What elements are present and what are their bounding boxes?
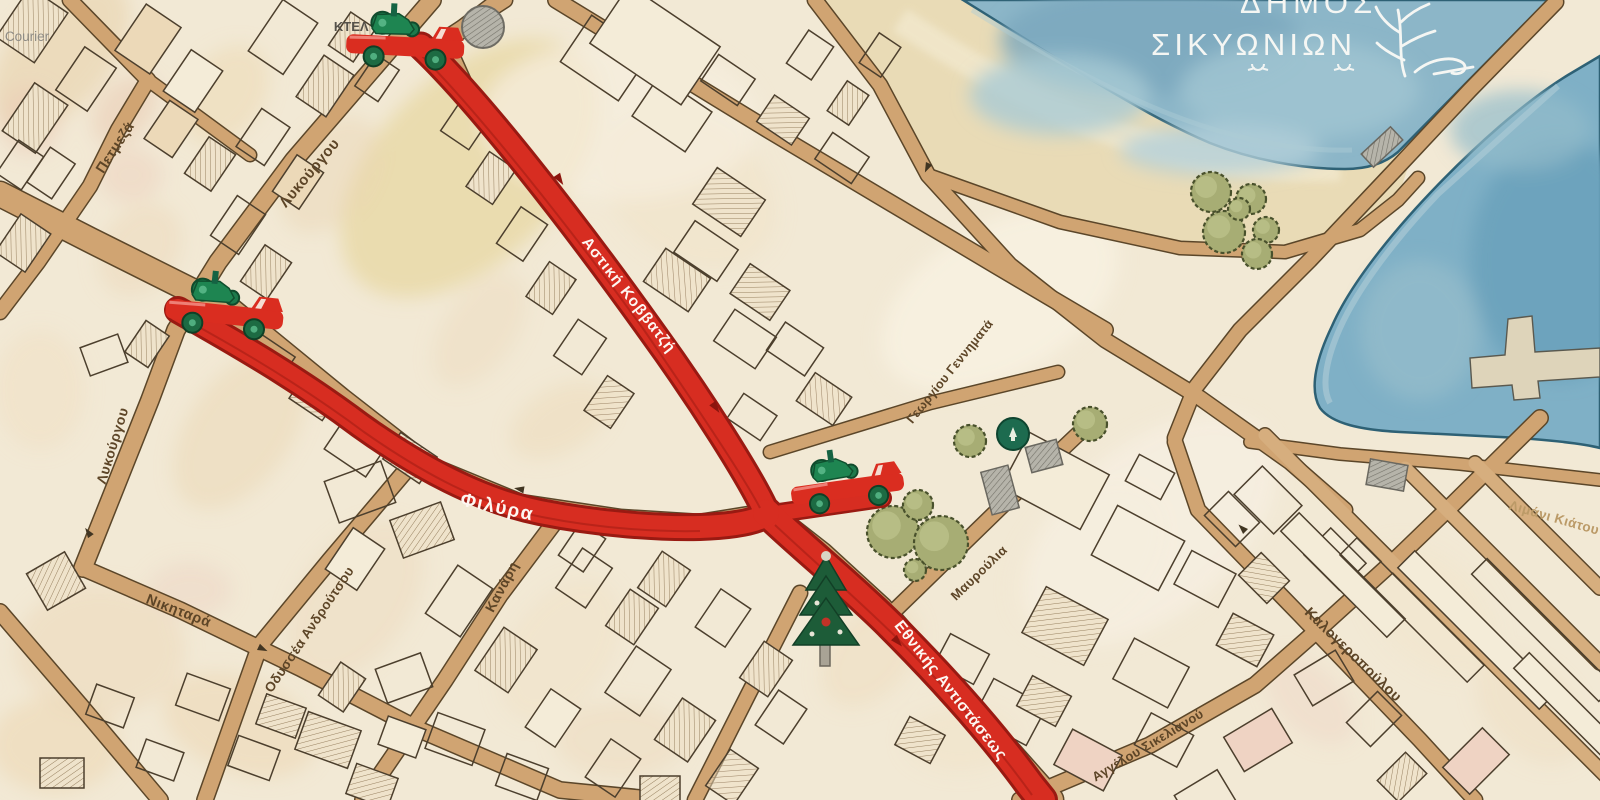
svg-text:Courier: Courier: [5, 29, 50, 44]
svg-text:ΔΗΜΟΣ: ΔΗΜΟΣ: [1240, 0, 1377, 20]
svg-text:ΣΙΚΥΩΝΙΩΝ: ΣΙΚΥΩΝΙΩΝ: [1151, 27, 1356, 62]
